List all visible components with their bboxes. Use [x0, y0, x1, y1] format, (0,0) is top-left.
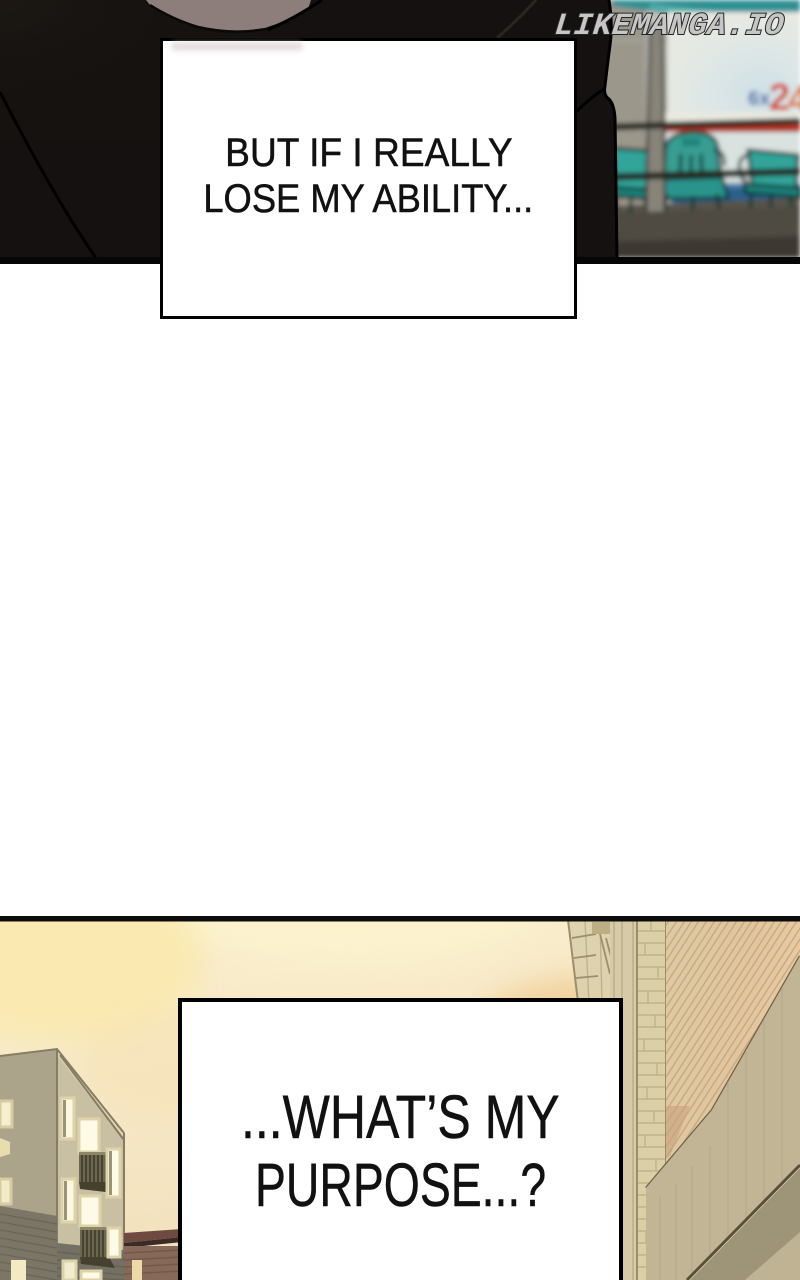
svg-text:LIKEMANGA.IO: LIKEMANGA.IO — [553, 9, 786, 44]
svg-text:6x: 6x — [748, 88, 770, 110]
